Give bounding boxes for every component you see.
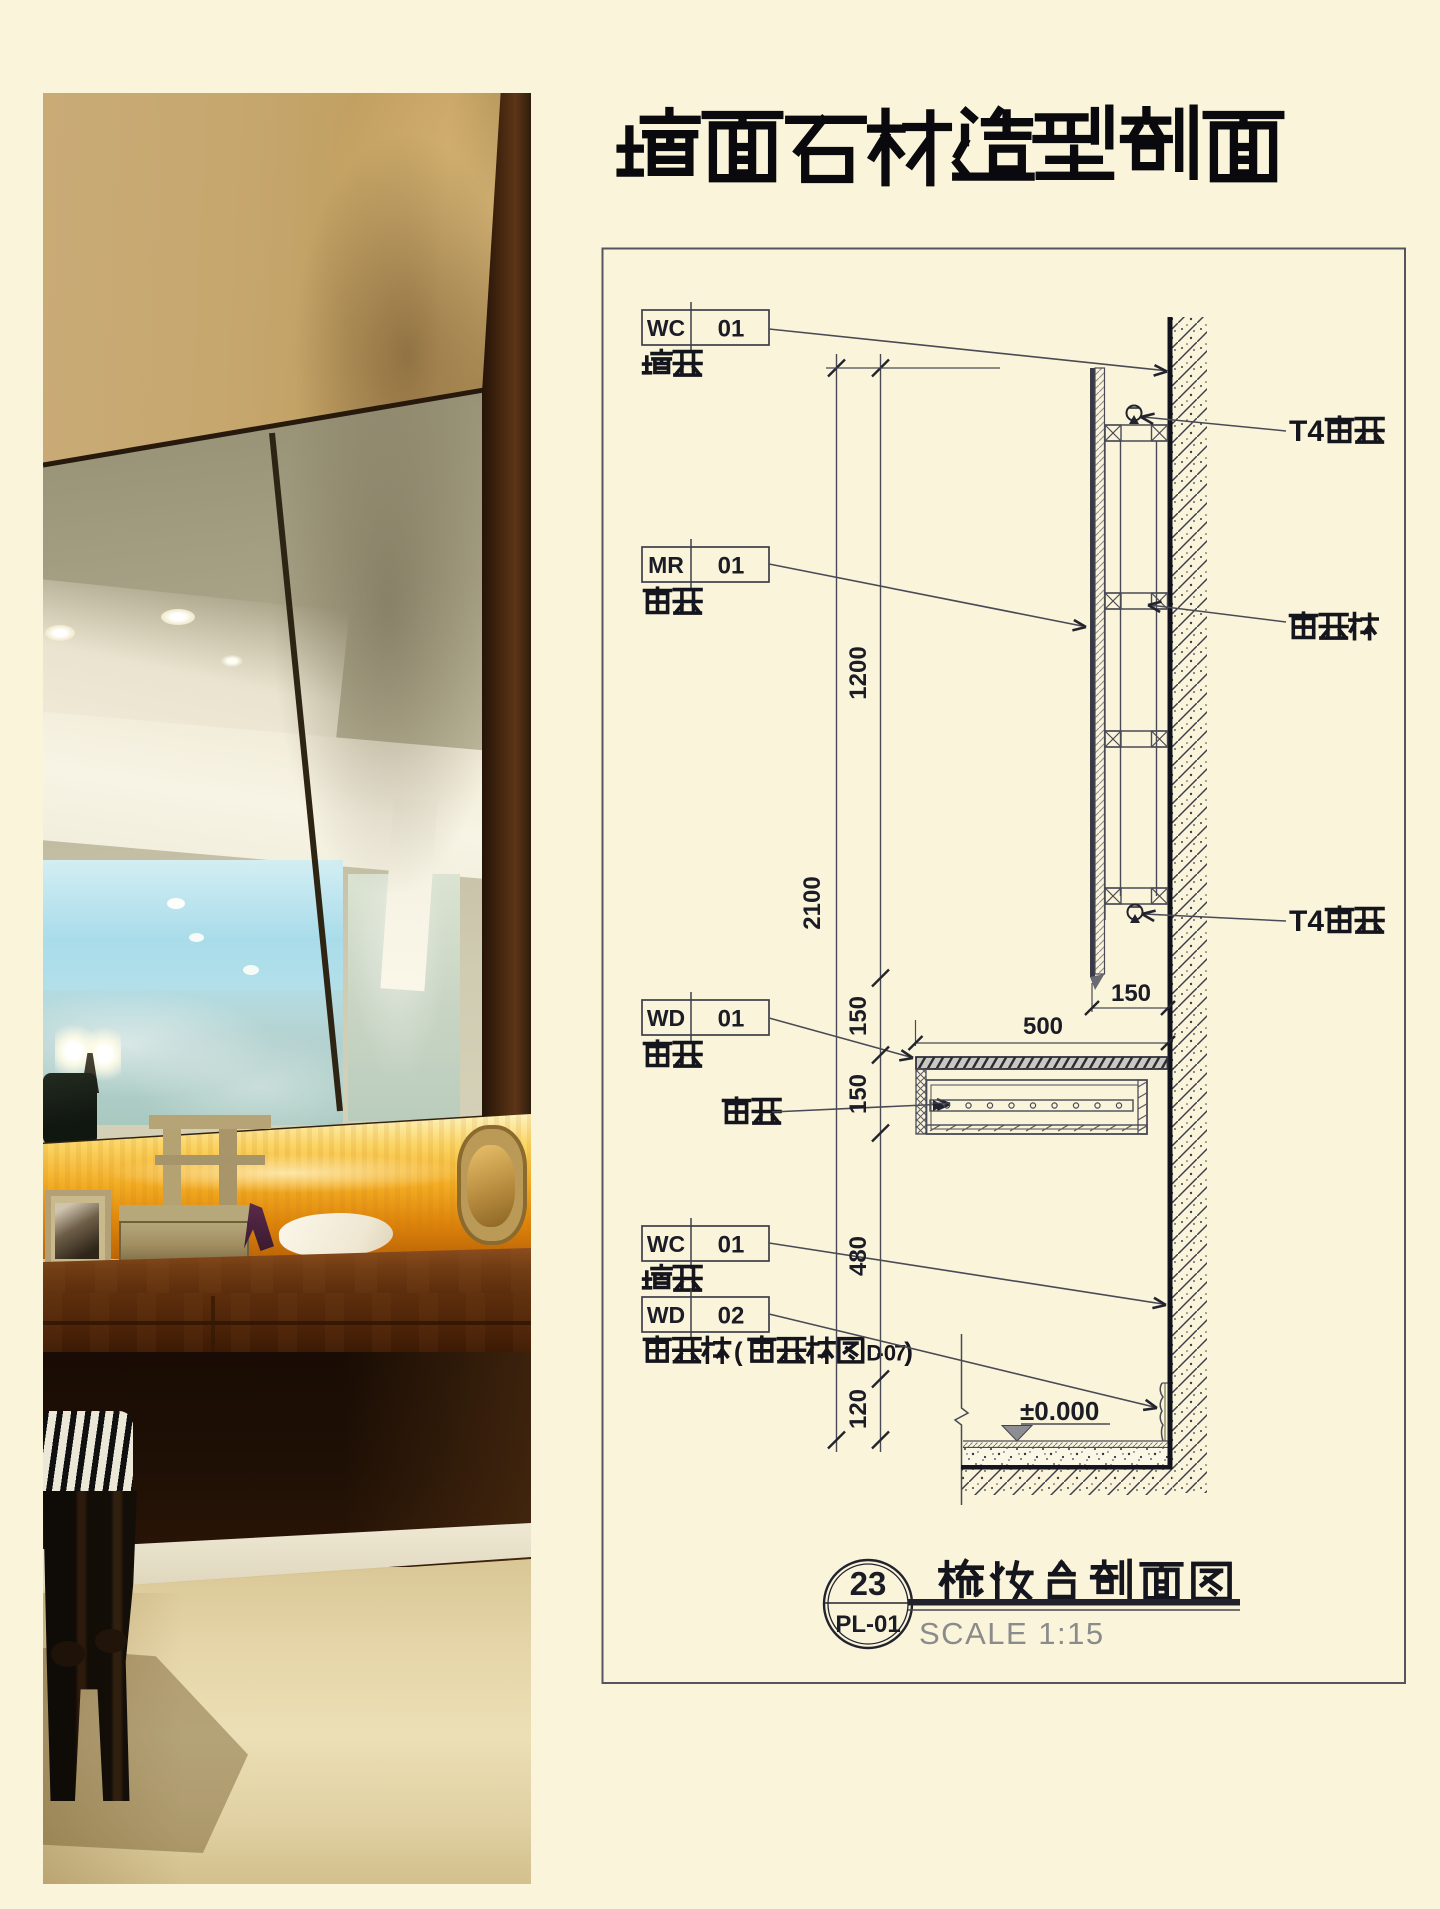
svg-text:(: ( [734,1337,743,1367]
svg-text:01: 01 [718,1232,745,1259]
svg-text:): ) [904,1337,913,1367]
svg-text:WC: WC [647,1231,685,1257]
svg-text:480: 480 [845,1236,872,1276]
svg-text:WD: WD [647,1302,685,1328]
svg-text:01: 01 [718,553,745,580]
svg-text:2100: 2100 [799,876,826,929]
svg-text:23: 23 [850,1565,887,1602]
svg-text:01: 01 [718,316,745,343]
svg-text:1200: 1200 [845,646,872,699]
svg-text:WD: WD [647,1005,685,1031]
svg-text:500: 500 [1023,1013,1063,1040]
svg-text:150: 150 [1111,980,1151,1007]
svg-text:PL-01: PL-01 [835,1611,900,1638]
svg-text:150: 150 [845,1074,872,1114]
svg-text:01: 01 [718,1006,745,1033]
svg-text:±0.000: ±0.000 [1020,1396,1099,1426]
svg-text:02: 02 [718,1303,745,1330]
svg-text:MR: MR [648,552,684,578]
svg-text:120: 120 [845,1389,872,1429]
svg-text:150: 150 [845,996,872,1036]
svg-text:T4: T4 [1289,905,1324,938]
svg-text:SCALE 1:15: SCALE 1:15 [919,1616,1105,1651]
svg-text:T4: T4 [1289,415,1324,448]
svg-text:WC: WC [647,315,685,341]
